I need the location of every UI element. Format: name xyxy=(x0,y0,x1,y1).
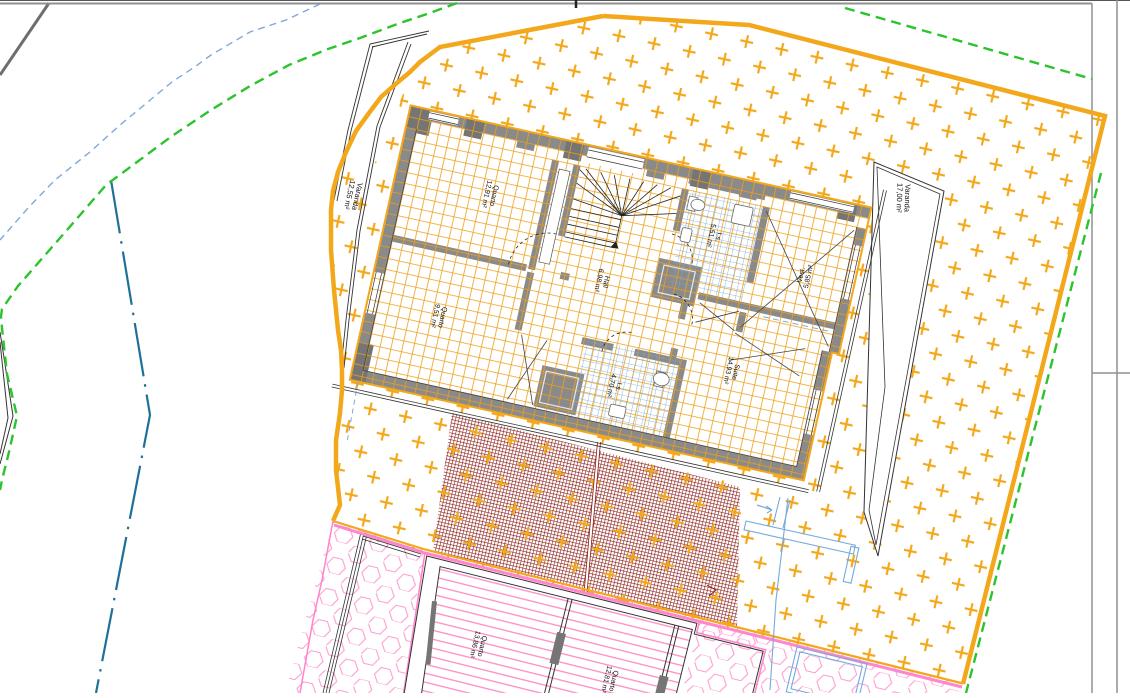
svg-text:Varanda17,00 m²: Varanda17,00 m² xyxy=(894,183,912,214)
